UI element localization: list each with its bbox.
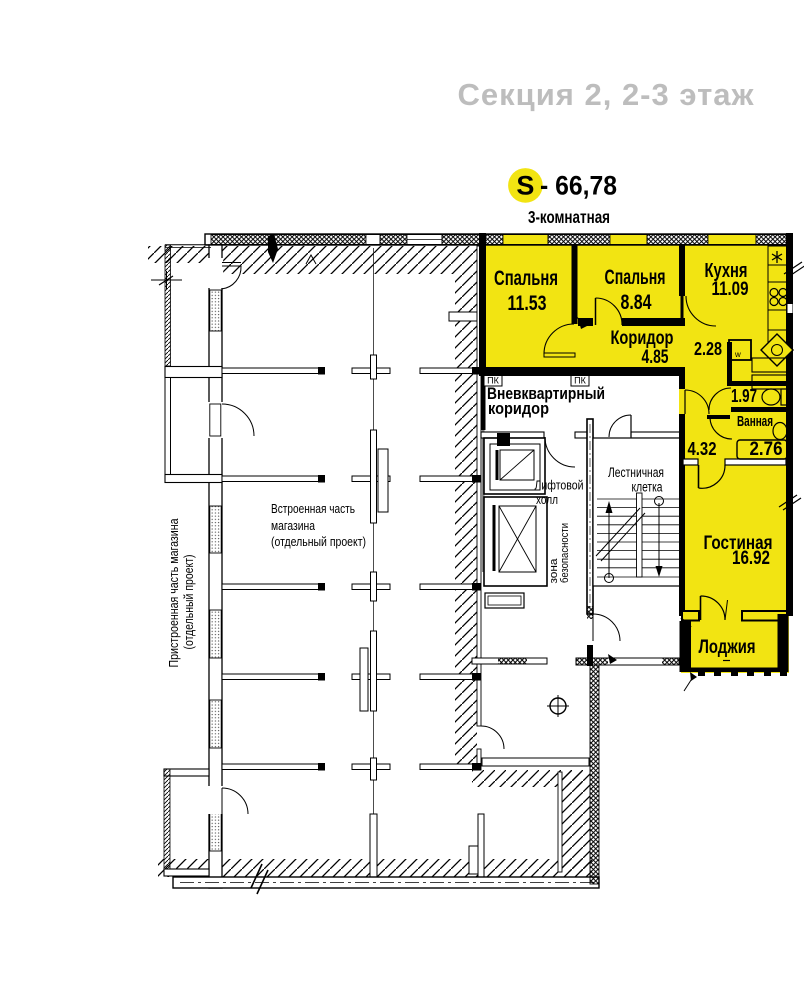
svg-text:ПК: ПК bbox=[574, 376, 586, 386]
svg-text:Спальня: Спальня bbox=[494, 267, 558, 290]
svg-text:Встроенная часть: Встроенная часть bbox=[271, 502, 355, 516]
svg-text:Ванная: Ванная bbox=[737, 413, 773, 430]
svg-text:- 66,78: - 66,78 bbox=[540, 171, 617, 201]
svg-text:w: w bbox=[734, 350, 741, 359]
svg-text:Лифтовой: Лифтовой bbox=[535, 479, 584, 493]
svg-text:3-комнатная: 3-комнатная bbox=[528, 207, 610, 227]
svg-text:1.97: 1.97 bbox=[731, 386, 757, 406]
svg-text:Лестничная: Лестничная bbox=[608, 465, 664, 480]
svg-text:11.09: 11.09 bbox=[712, 279, 749, 300]
svg-text:16.92: 16.92 bbox=[732, 548, 770, 569]
svg-text:S: S bbox=[516, 171, 534, 201]
svg-text:8.84: 8.84 bbox=[621, 291, 652, 314]
svg-text:безопасности: безопасности bbox=[559, 523, 571, 583]
svg-text:(отдельный проект): (отдельный проект) bbox=[182, 555, 196, 650]
svg-text:4.32: 4.32 bbox=[688, 439, 717, 459]
svg-text:Спальня: Спальня bbox=[605, 266, 666, 289]
svg-text:коридор: коридор bbox=[488, 399, 549, 418]
svg-text:2.28: 2.28 bbox=[694, 339, 722, 359]
svg-text:клетка: клетка bbox=[632, 480, 663, 495]
svg-text:4.85: 4.85 bbox=[642, 347, 669, 368]
svg-text:Секция 2, 2-3 этаж: Секция 2, 2-3 этаж bbox=[458, 77, 755, 112]
svg-text:холл: холл bbox=[536, 493, 558, 507]
svg-text:Лоджия: Лоджия bbox=[699, 637, 756, 658]
svg-text:магазина: магазина bbox=[271, 519, 315, 533]
svg-text:ПК: ПК bbox=[487, 376, 499, 386]
svg-text:Пристроенная часть магазина: Пристроенная часть магазина bbox=[167, 518, 181, 667]
svg-text:Коридор: Коридор bbox=[611, 328, 674, 349]
svg-text:2.76: 2.76 bbox=[750, 439, 783, 460]
svg-text:(отдельный проект): (отдельный проект) bbox=[271, 535, 366, 549]
svg-text:11.53: 11.53 bbox=[508, 292, 547, 315]
